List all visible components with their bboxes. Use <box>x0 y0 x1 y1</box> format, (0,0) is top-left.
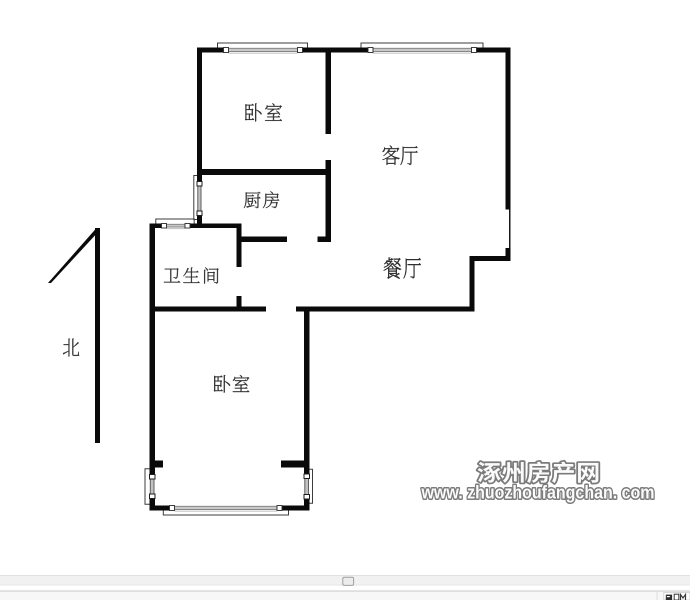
svg-text:www. zhuozhoufangchan. com: www. zhuozhoufangchan. com <box>421 482 655 503</box>
